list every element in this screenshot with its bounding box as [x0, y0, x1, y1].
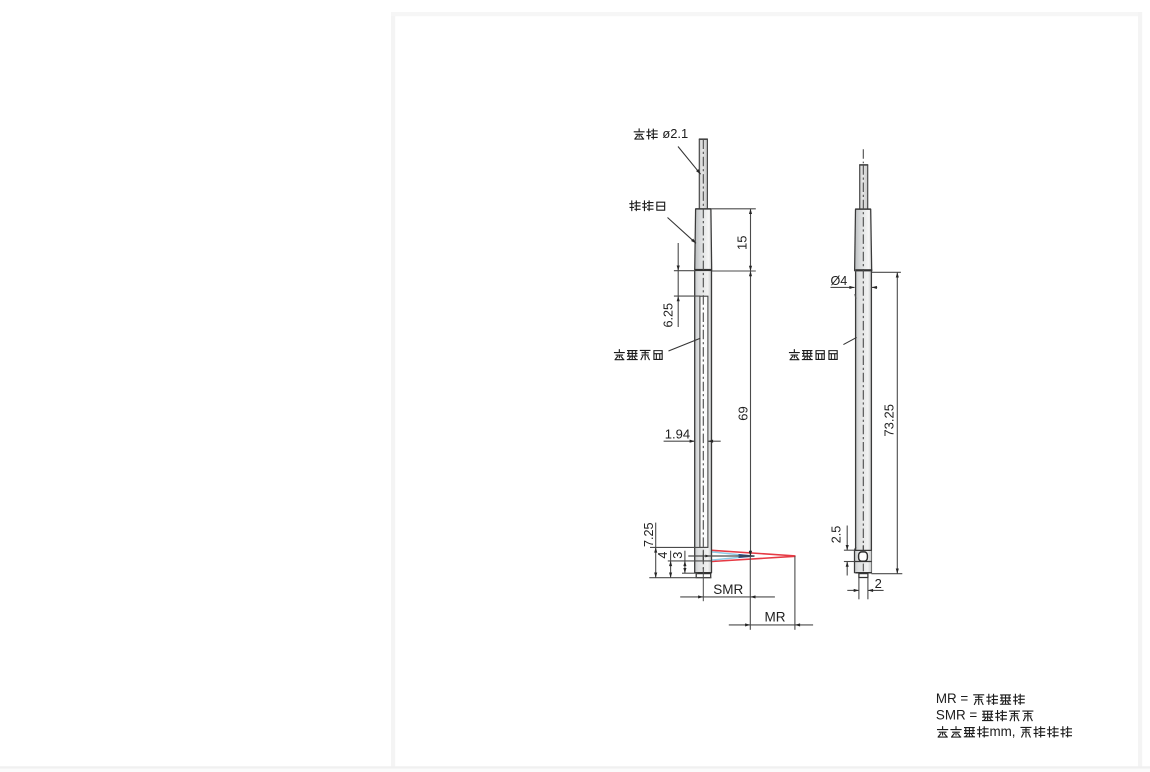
svg-text:2.5: 2.5	[830, 526, 844, 544]
svg-text:SMR =: SMR =	[936, 707, 977, 722]
svg-text:Ø4: Ø4	[831, 274, 848, 288]
svg-text:7.25: 7.25	[642, 522, 656, 547]
svg-text:3: 3	[671, 552, 685, 559]
svg-text:4: 4	[656, 552, 670, 559]
svg-text:ø2.1: ø2.1	[662, 126, 688, 141]
svg-text:73.25: 73.25	[881, 404, 896, 437]
svg-text:MR: MR	[765, 610, 786, 625]
svg-text:15: 15	[734, 236, 749, 250]
svg-text:6.25: 6.25	[661, 303, 675, 328]
svg-text:MR =: MR =	[936, 691, 969, 706]
svg-text:SMR: SMR	[713, 582, 743, 597]
svg-text:1.94: 1.94	[665, 427, 690, 442]
svg-text:69: 69	[735, 406, 750, 420]
svg-text:mm,: mm,	[990, 724, 1016, 739]
svg-text:2: 2	[875, 576, 882, 591]
